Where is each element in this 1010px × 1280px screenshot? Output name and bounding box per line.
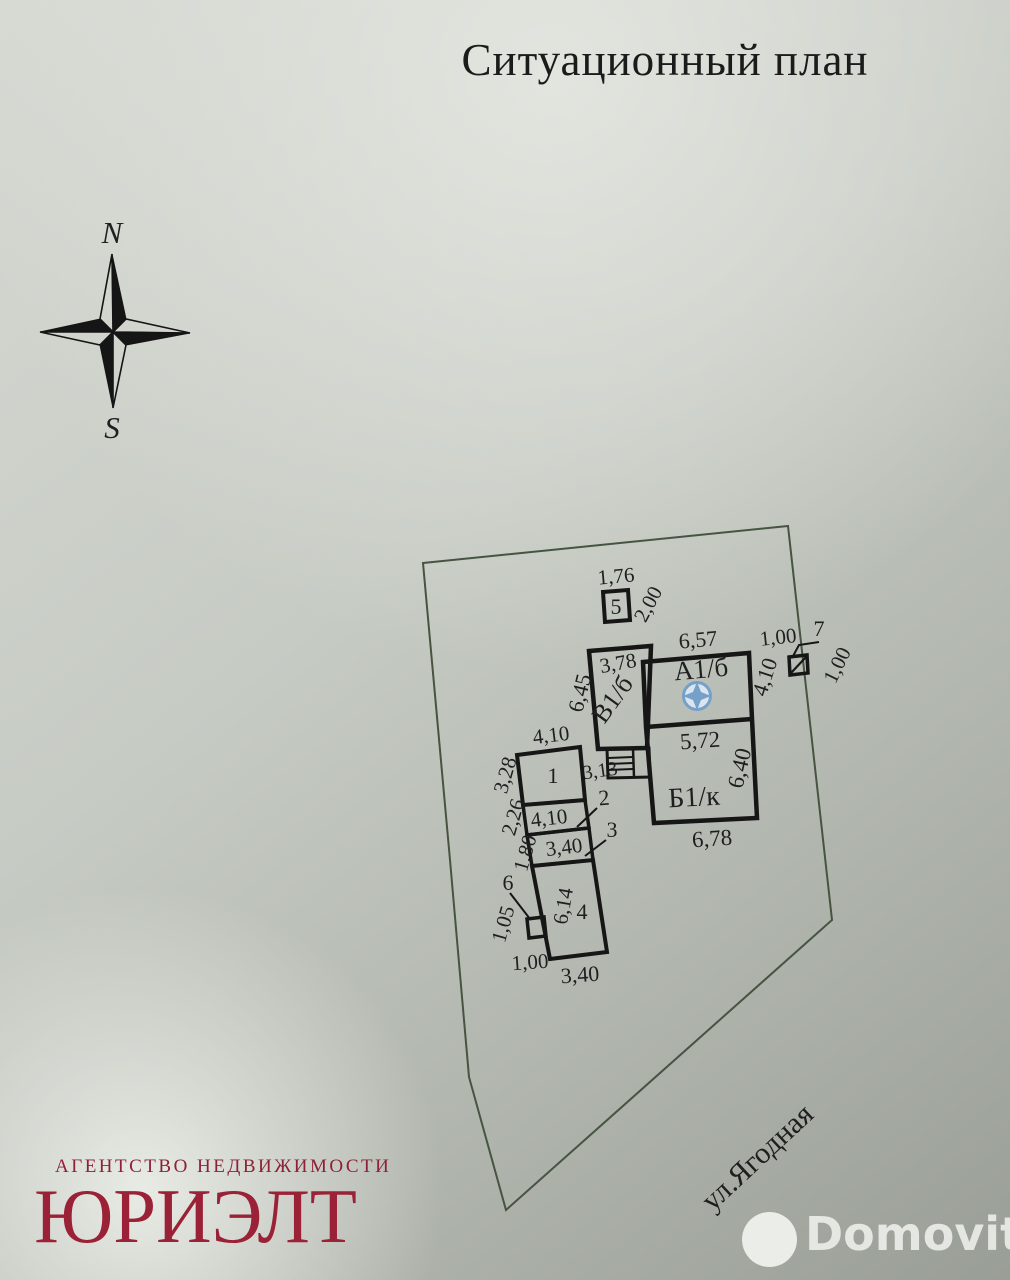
dim-1-00-bottom: 1,00	[511, 949, 549, 976]
dim-3-13: 3,13	[581, 758, 619, 785]
situational-plan-document: Ситуационный план N S	[0, 0, 1010, 1280]
structure-3-label: 3	[607, 817, 618, 842]
watermark-text: Domovita	[805, 1207, 1010, 1261]
dim-5-72: 5,72	[679, 727, 721, 755]
dim-4-10-in-2: 4,10	[529, 804, 568, 832]
dim-6-57: 6,57	[678, 625, 719, 653]
dim-1-00-right-of-7: 1,00	[818, 643, 856, 687]
dim-6-14: 6,14	[548, 885, 578, 926]
street-name-label: ул.Ягодная	[695, 1097, 820, 1217]
compass-north-label: N	[101, 215, 125, 250]
dim-3-40-in-3: 3,40	[544, 833, 583, 861]
agency-logo: ЮРИЭЛТ	[18, 1176, 373, 1257]
site-plan-drawing: N S	[0, 0, 1010, 1280]
leader-line-3	[585, 840, 606, 856]
compass-arm	[40, 319, 113, 332]
dim-3-28: 3,28	[488, 754, 521, 796]
dim-3-40-bottom: 3,40	[560, 961, 600, 989]
building-divider-line	[646, 719, 752, 727]
compass-arm	[113, 332, 126, 408]
structure-6-label: 6	[503, 870, 514, 895]
dim-2-00: 2,00	[629, 582, 667, 626]
compass-arm	[113, 319, 190, 333]
structure-7-label: 7	[814, 616, 825, 641]
building-b1k-label: Б1/к	[668, 781, 721, 815]
dim-6-78: 6,78	[691, 825, 733, 853]
dim-2-26: 2,26	[496, 796, 529, 838]
structure-1-label: 1	[548, 763, 559, 788]
dim-1-00-left-of-7: 1,00	[758, 623, 797, 651]
structure-7-outline	[789, 655, 808, 675]
structure-5-label: 5	[611, 594, 622, 619]
compass-south-label: S	[104, 410, 120, 445]
dim-1-05: 1,05	[486, 903, 519, 945]
building-a1b-label: А1/б	[673, 652, 730, 687]
compass-arm	[40, 332, 113, 345]
dim-1-80: 1,80	[508, 832, 541, 874]
structure-2-label: 2	[597, 785, 610, 811]
watermark-circle-icon	[742, 1212, 797, 1267]
compass-rose-icon: N S	[40, 215, 190, 445]
dim-6-40: 6,40	[723, 746, 756, 791]
geodetic-marker-icon	[683, 682, 711, 710]
dim-1-76: 1,76	[597, 562, 636, 589]
dim-4-10-above-1: 4,10	[531, 721, 570, 749]
structure-4-label: 4	[577, 899, 588, 924]
dim-4-10-right: 4,10	[747, 655, 783, 699]
